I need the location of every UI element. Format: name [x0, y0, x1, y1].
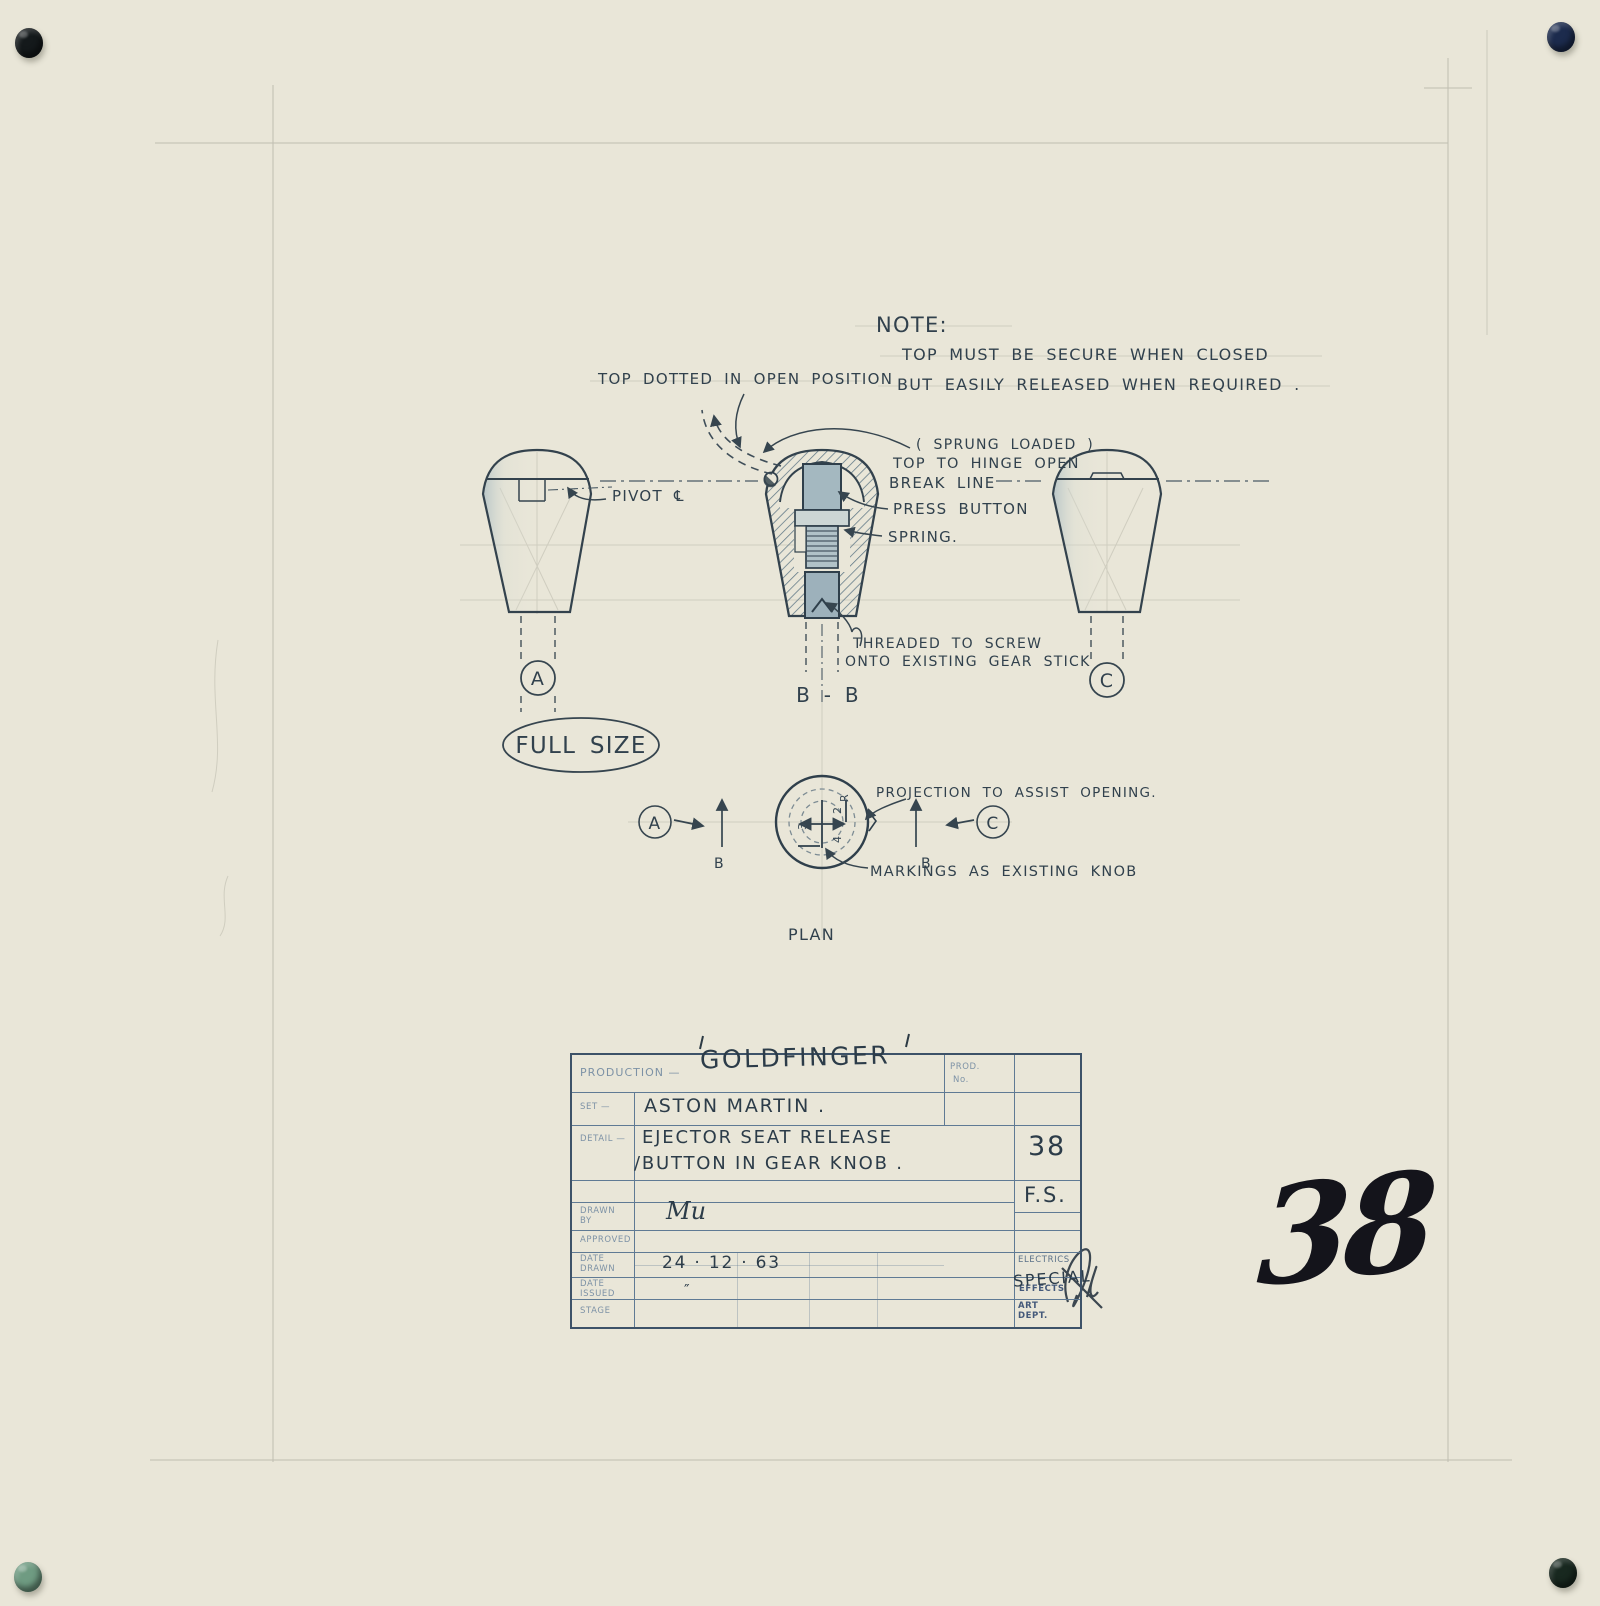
prod-no-label-1: PROD.: [950, 1063, 980, 1073]
section-label-c: C: [1100, 670, 1115, 692]
spring-label: SPRING.: [888, 528, 958, 546]
note-line-1: TOP MUST BE SECURE WHEN CLOSED: [901, 345, 1269, 364]
threaded-label-1: THREADED TO SCREW: [852, 636, 1042, 652]
plan-arrow-label-a: A: [649, 814, 662, 834]
production-label: PRODUCTION —: [580, 1068, 680, 1078]
plan-arrow-label-b-left: B: [714, 856, 725, 872]
gear-mark-4: 4: [831, 836, 844, 843]
dept-art-label: ART DEPT.: [1018, 1302, 1050, 1321]
sheet-number-cell: 38: [1028, 1131, 1066, 1162]
sprung-loaded-label: ( SPRUNG LOADED ): [916, 437, 1094, 453]
approved-label: APPROVED: [580, 1236, 631, 1246]
hinge-leader-arrow: [764, 429, 910, 452]
scale-cell: F.S.: [1024, 1183, 1067, 1207]
threaded-label-2: ONTO EXISTING GEAR STICK: [845, 654, 1091, 670]
prod-no-label-2: No.: [953, 1076, 969, 1086]
plan-title: PLAN: [788, 925, 835, 944]
drawing-sheet: A PIVOT ℄: [0, 0, 1600, 1606]
pivot-label: PIVOT ℄: [612, 487, 685, 505]
technical-drawing: A PIVOT ℄: [0, 0, 1600, 1606]
projection-label: PROJECTION TO ASSIST OPENING.: [876, 785, 1157, 801]
dept-effects-handwritten: SPECIAL: [1012, 1266, 1091, 1290]
gear-mark-r: R: [838, 794, 851, 802]
full-size-label: FULL SIZE: [515, 733, 646, 759]
dept-electrics-label: ELECTRICS: [1018, 1256, 1070, 1266]
drawn-by-label: DRAWN BY: [580, 1207, 628, 1226]
markings-leader-arrow: [826, 849, 868, 868]
markings-label: MARKINGS AS EXISTING KNOB: [870, 864, 1138, 880]
production-value: GOLDFINGER: [700, 1041, 891, 1075]
title-block: PRODUCTION — GOLDFINGER PROD. No. SET — …: [570, 1053, 1082, 1329]
break-line-label: BREAK LINE: [889, 474, 996, 492]
top-dotted-label: TOP DOTTED IN OPEN POSITION: [597, 370, 893, 388]
set-label: SET —: [580, 1103, 610, 1113]
top-dotted-leader-arrow: [736, 394, 744, 447]
note-line-2: BUT EASILY RELEASED WHEN REQUIRED .: [897, 375, 1300, 394]
hinge-open-label: TOP TO HINGE OPEN: [892, 456, 1080, 472]
date-issued-value: ″: [684, 1281, 691, 1299]
plan-arrow-label-c: C: [986, 814, 999, 834]
sheet-number-large: 38: [1255, 1152, 1434, 1306]
note-title: NOTE:: [876, 313, 948, 337]
date-issued-label: DATE ISSUED: [580, 1280, 614, 1299]
gear-mark-3: 3: [796, 823, 809, 830]
date-drawn-value: 24 · 12 · 63: [662, 1253, 781, 1273]
detail-line-2: /BUTTON IN GEAR KNOB .: [634, 1153, 904, 1174]
drawn-by-value: Mu: [666, 1197, 706, 1225]
stage-label: STAGE: [580, 1307, 611, 1317]
gear-mark-2: 2: [831, 807, 844, 814]
detail-line-1: EJECTOR SEAT RELEASE: [642, 1127, 893, 1148]
pencil-guides: [212, 326, 1330, 938]
knob-side-view-a: A: [483, 450, 612, 712]
section-label-a: A: [531, 668, 545, 690]
set-value: ASTON MARTIN .: [644, 1095, 826, 1117]
section-label-bb: B - B: [796, 683, 860, 707]
detail-label: DETAIL —: [580, 1135, 626, 1145]
press-button-label: PRESS BUTTON: [893, 500, 1029, 518]
date-drawn-label: DATE DRAWN: [580, 1255, 614, 1274]
